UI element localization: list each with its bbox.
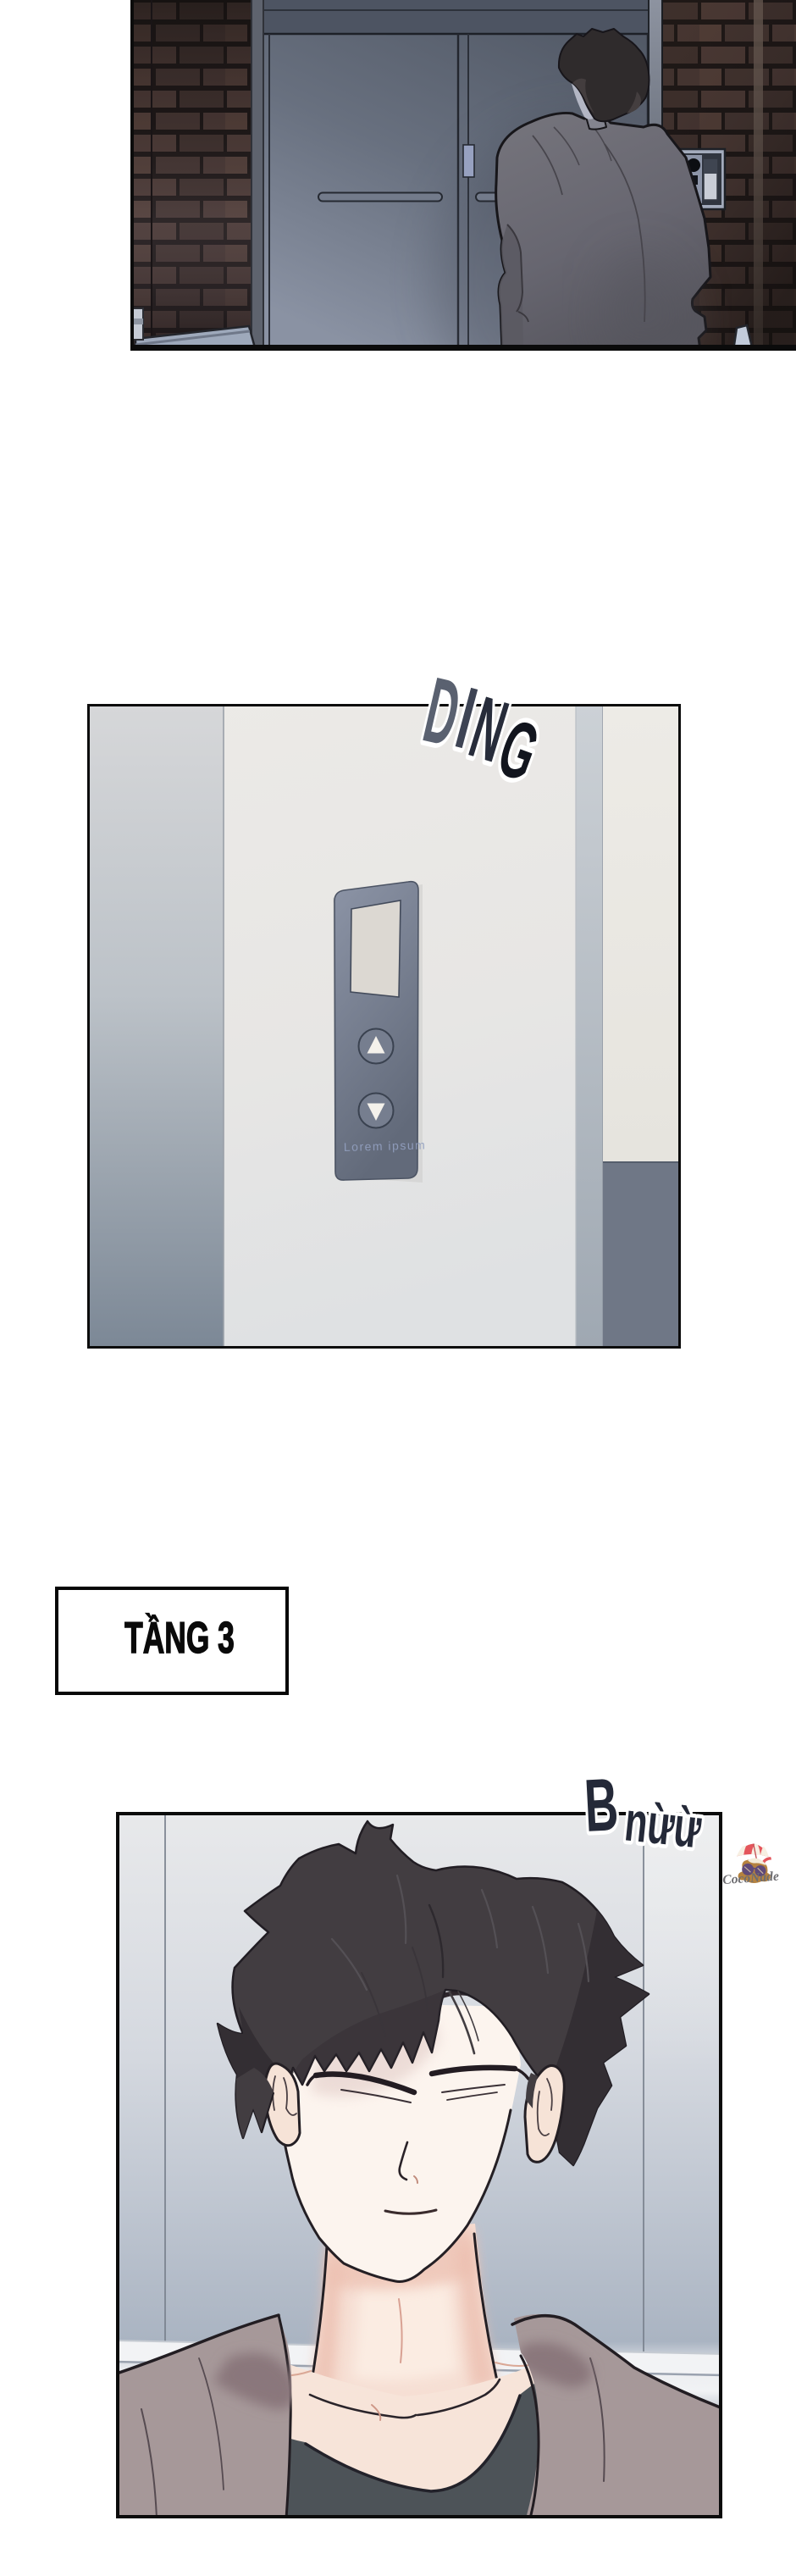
svg-text:CocoNade: CocoNade	[722, 1869, 780, 1887]
svg-text:Lorem ipsum: Lorem ipsum	[344, 1138, 427, 1154]
svg-text:B: B	[583, 1763, 621, 1848]
svg-text:nừừ: nừừ	[622, 1789, 705, 1859]
